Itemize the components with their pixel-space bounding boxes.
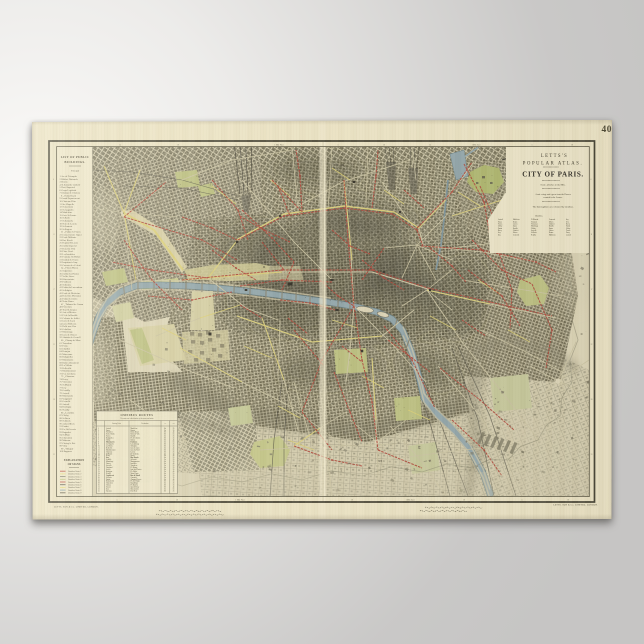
svg-text:1 Mile West: 1 Mile West: [235, 499, 245, 501]
svg-text:Madeleine: Madeleine: [131, 427, 138, 429]
svg-text:35: 35: [173, 461, 175, 463]
svg-text:6: 6: [591, 179, 592, 181]
svg-text:Louvre: Louvre: [549, 230, 554, 232]
svg-text:22: 22: [591, 344, 593, 346]
svg-text:Bourse: Bourse: [513, 221, 518, 223]
svg-text:Pl. de l'Etoile: Pl. de l'Etoile: [106, 433, 115, 435]
svg-text:Observatoire: Observatoire: [131, 488, 140, 490]
svg-text:Pl. Blanche: Pl. Blanche: [531, 219, 539, 221]
svg-text:55: 55: [173, 457, 175, 459]
svg-text:Concorde: Concorde: [549, 219, 555, 221]
svg-text:Bercy: Bercy: [566, 223, 570, 225]
svg-text:Destination: Destination: [141, 423, 148, 425]
svg-text:55: 55: [173, 480, 175, 482]
svg-text:1: 1: [299, 313, 301, 317]
svg-text:30c: 30c: [164, 478, 167, 480]
svg-text:Jard. des Plantes: Jard. des Plantes: [131, 468, 142, 470]
svg-text:10: 10: [463, 499, 465, 501]
svg-text:25: 25: [173, 451, 175, 453]
svg-text:33: 33: [591, 454, 593, 456]
svg-text:5: 5: [532, 144, 533, 146]
svg-text:Neuilly: Neuilly: [106, 472, 111, 474]
svg-text:15: 15: [160, 401, 164, 405]
svg-text:35: 35: [173, 476, 175, 478]
svg-text:Montparnasse: Montparnasse: [131, 461, 140, 463]
svg-text:25c: 25c: [164, 453, 167, 455]
svg-text:10: 10: [351, 499, 353, 501]
svg-text:Charenton: Charenton: [106, 482, 113, 484]
svg-text:45: 45: [173, 439, 175, 441]
svg-text:5: 5: [338, 144, 339, 146]
svg-text:10: 10: [176, 499, 178, 501]
svg-text:33: 33: [53, 454, 55, 456]
svg-text:OF SIGNS: OF SIGNS: [68, 463, 81, 466]
svg-text:40: 40: [602, 125, 613, 135]
svg-text:20c: 20c: [164, 463, 167, 465]
svg-text:Suresnes: Suresnes: [106, 490, 112, 492]
svg-text:17: 17: [210, 239, 214, 243]
svg-text:Rue de Rivoli: Rue de Rivoli: [131, 474, 141, 476]
svg-text:Pantin: Pantin: [498, 227, 502, 229]
svg-text:55: 55: [173, 488, 175, 490]
svg-text:20: 20: [482, 235, 486, 239]
svg-text:15: 15: [429, 144, 431, 146]
svg-text:35: 35: [173, 445, 175, 447]
svg-text:counted in the Louvre.: counted in the Louvre.: [543, 197, 563, 199]
svg-text:25c: 25c: [164, 429, 167, 431]
svg-text:Grenelle: Grenelle: [531, 230, 537, 232]
svg-text:Montmartre: Montmartre: [106, 441, 115, 443]
svg-text:25: 25: [173, 482, 175, 484]
svg-text:25c: 25c: [164, 441, 167, 443]
svg-text:10: 10: [383, 144, 385, 146]
svg-text:Sceaux: Sceaux: [106, 486, 111, 488]
svg-text:30c: 30c: [164, 467, 167, 469]
svg-text:28: 28: [591, 399, 593, 401]
svg-text:Pantin: Pantin: [566, 225, 570, 227]
svg-text:Odeon: Odeon: [513, 232, 517, 234]
svg-text:LETTS, SON & Co. LIMITED, LOND: LETTS, SON & Co. LIMITED, LONDON.: [553, 504, 598, 506]
svg-text:Neuilly: Neuilly: [531, 234, 536, 236]
svg-text:Opera: Opera: [131, 455, 135, 457]
svg-text:Pantheon: Pantheon: [131, 441, 138, 443]
svg-text:25c: 25c: [164, 447, 167, 449]
svg-text:LETTS, SON & Co. LIMITED, LOND: LETTS, SON & Co. LIMITED, LONDON.: [54, 506, 99, 508]
svg-text:BUILDINGS.: BUILDINGS.: [64, 160, 85, 164]
svg-text:Invalides: Invalides: [131, 463, 137, 465]
svg-text:Omnibus Route 7: Omnibus Route 7: [68, 487, 81, 489]
svg-text:25c: 25c: [164, 488, 167, 490]
svg-text:Principal: Principal: [70, 170, 80, 172]
svg-text:Omnibus Route 9: Omnibus Route 9: [68, 492, 81, 494]
svg-text:La Chapelle: La Chapelle: [106, 443, 114, 445]
svg-text:13: 13: [378, 459, 382, 463]
svg-text:45: 45: [173, 463, 175, 465]
svg-text:Passy: Passy: [566, 232, 570, 234]
svg-text:25: 25: [173, 467, 175, 469]
svg-text:Ternes: Ternes: [106, 435, 111, 437]
svg-text:Passy: Passy: [498, 221, 502, 223]
svg-text:Concorde: Concorde: [131, 476, 138, 478]
svg-text:5: 5: [236, 144, 237, 146]
svg-text:22: 22: [53, 344, 55, 346]
svg-text:Bercy: Bercy: [498, 230, 502, 232]
svg-text:Pl. d'Italie: Pl. d'Italie: [131, 470, 138, 472]
svg-text:11: 11: [591, 234, 593, 236]
svg-text:10: 10: [567, 499, 569, 501]
svg-text:35: 35: [173, 484, 175, 486]
svg-text:20c: 20c: [164, 427, 167, 429]
svg-text:St.Denis: St.Denis: [106, 476, 112, 478]
svg-text:4: 4: [383, 295, 385, 299]
svg-text:Choisy: Choisy: [106, 484, 111, 486]
svg-text:Chatelet: Chatelet: [513, 230, 519, 232]
svg-text:Bourse: Bourse: [549, 232, 554, 234]
svg-text:Omnibus Route 6: Omnibus Route 6: [68, 484, 81, 486]
svg-text:LIST OF PUBLIC: LIST OF PUBLIC: [61, 155, 90, 159]
svg-text:Ivry: Ivry: [566, 221, 569, 223]
svg-text:6: 6: [53, 179, 54, 181]
svg-text:45: 45: [173, 431, 175, 433]
svg-text:1 Mile East: 1 Mile East: [472, 144, 481, 146]
svg-text:20c: 20c: [164, 457, 167, 459]
svg-text:5: 5: [117, 499, 118, 501]
svg-text:Bourse: Bourse: [131, 429, 136, 431]
svg-text:17: 17: [53, 289, 55, 291]
svg-text:25: 25: [173, 443, 175, 445]
svg-text:100 Bagneux: 100 Bagneux: [60, 450, 73, 453]
svg-text:Belleville: Belleville: [106, 447, 113, 449]
svg-text:Trocadero: Trocadero: [106, 431, 113, 433]
svg-text:30c: 30c: [164, 449, 167, 451]
svg-text:Sevres: Sevres: [106, 468, 111, 470]
svg-text:25c: 25c: [164, 482, 167, 484]
svg-text:35: 35: [173, 468, 175, 470]
svg-text:25c: 25c: [164, 435, 167, 437]
svg-text:Bercy: Bercy: [106, 455, 110, 457]
svg-text:35: 35: [173, 429, 175, 431]
svg-text:Opera: Opera: [549, 227, 553, 229]
svg-text:Villette: Villette: [531, 227, 536, 229]
svg-text:Ivry: Ivry: [498, 232, 501, 234]
svg-text:30c: 30c: [164, 437, 167, 439]
svg-text:11: 11: [53, 234, 55, 236]
svg-text:25: 25: [173, 435, 175, 437]
svg-text:Issy: Issy: [106, 488, 109, 490]
svg-text:35: 35: [173, 437, 175, 439]
svg-text:St.Denis: St.Denis: [531, 232, 537, 234]
svg-text:Omnibus Route 4: Omnibus Route 4: [68, 479, 81, 481]
svg-text:20c: 20c: [164, 433, 167, 435]
svg-text:CITY OF PARIS.: CITY OF PARIS.: [522, 170, 584, 178]
svg-text:18: 18: [340, 163, 344, 167]
svg-text:55: 55: [173, 472, 175, 474]
svg-text:Charonne: Charonne: [106, 451, 113, 453]
svg-text:55: 55: [173, 441, 175, 443]
svg-text:20c: 20c: [164, 486, 167, 488]
svg-text:Concorde: Concorde: [513, 234, 519, 236]
svg-text:St.Sulpice: St.Sulpice: [131, 445, 138, 447]
svg-text:Odeon: Odeon: [131, 439, 136, 441]
svg-text:Louvre: Louvre: [131, 451, 136, 453]
svg-text:Pl. du Chatelet: Pl. du Chatelet: [131, 437, 141, 439]
svg-text:Passy: Passy: [106, 429, 110, 431]
svg-text:Pl. Blanche: Pl. Blanche: [131, 484, 139, 486]
svg-text:Quai d'Orsay: Quai d'Orsay: [131, 486, 140, 488]
svg-text:Palais Royal: Palais Royal: [131, 431, 140, 433]
svg-text:20c: 20c: [164, 439, 167, 441]
svg-text:15: 15: [119, 144, 121, 146]
svg-text:Omnibus Route 2: Omnibus Route 2: [68, 473, 81, 475]
svg-text:Clichy: Clichy: [498, 225, 502, 227]
svg-text:25c: 25c: [164, 476, 167, 478]
svg-text:16: 16: [134, 258, 138, 262]
svg-text:30c: 30c: [164, 455, 167, 457]
svg-text:20c: 20c: [164, 480, 167, 482]
svg-text:POPULAR ATLAS.: POPULAR ATLAS.: [523, 161, 583, 166]
svg-text:Ivry: Ivry: [106, 457, 109, 459]
svg-text:1 Mile West: 1 Mile West: [274, 144, 284, 146]
svg-text:45: 45: [173, 455, 175, 457]
svg-text:Gentilly: Gentilly: [106, 459, 112, 461]
svg-text:Ternes: Ternes: [566, 230, 571, 232]
svg-text:10: 10: [571, 144, 573, 146]
svg-text:Courbevoie: Courbevoie: [106, 474, 114, 476]
svg-text:Clichy: Clichy: [566, 227, 570, 229]
svg-text:Menilmontant: Menilmontant: [106, 449, 116, 451]
svg-text:Time: Time: [172, 423, 175, 425]
svg-text:20c: 20c: [164, 474, 167, 476]
svg-text:Opera: Opera: [513, 225, 517, 227]
svg-text:Omnibus Route 3: Omnibus Route 3: [68, 476, 81, 478]
svg-text:55: 55: [173, 465, 175, 467]
svg-text:20c: 20c: [164, 445, 167, 447]
svg-text:Issy: Issy: [566, 219, 569, 221]
svg-text:45: 45: [173, 470, 175, 472]
svg-text:5: 5: [294, 499, 295, 501]
svg-text:Clichy: Clichy: [106, 439, 111, 441]
svg-text:20c: 20c: [164, 468, 167, 470]
svg-text:St.Lazare: St.Lazare: [531, 221, 537, 223]
svg-text:Odeon: Odeon: [549, 221, 553, 223]
svg-text:Bastille: Bastille: [513, 227, 518, 229]
svg-text:Vincennes: Vincennes: [531, 223, 538, 225]
svg-text:8: 8: [263, 265, 265, 269]
svg-text:Bastille: Bastille: [131, 435, 136, 437]
svg-text:Notre Dame: Notre Dame: [131, 472, 139, 474]
svg-text:Romainville: Romainville: [106, 480, 114, 482]
svg-text:Pantin: Pantin: [106, 478, 110, 480]
svg-text:30c: 30c: [164, 461, 167, 463]
svg-text:OMNIBUS ROUTES: OMNIBUS ROUTES: [121, 414, 154, 417]
svg-text:Rue Royale: Rue Royale: [131, 457, 139, 459]
svg-text:Madeleine: Madeleine: [549, 234, 556, 236]
svg-text:5: 5: [522, 499, 523, 501]
svg-text:30c: 30c: [164, 484, 167, 486]
svg-text:Scale: 4 Inches to the Mile.: Scale: 4 Inches to the Mile.: [540, 184, 566, 186]
svg-text:Gare du Nord: Gare du Nord: [131, 449, 140, 451]
svg-text:10: 10: [177, 144, 179, 146]
svg-text:Ternes: Ternes: [498, 223, 503, 225]
svg-text:Champs Elysees: Champs Elysees: [131, 478, 142, 480]
svg-text:30c: 30c: [164, 472, 167, 474]
svg-text:Trocadero: Trocadero: [131, 465, 138, 467]
svg-text:14: 14: [280, 435, 284, 439]
svg-text:28: 28: [53, 399, 55, 401]
svg-text:Issy: Issy: [498, 234, 501, 236]
svg-text:The thoroughfares are coloured: The thoroughfares are coloured by omnibu…: [533, 205, 574, 208]
svg-text:Bastille: Bastille: [549, 225, 554, 227]
svg-text:Fare: Fare: [164, 423, 167, 425]
svg-text:Gare de Lyon: Gare de Lyon: [131, 447, 140, 449]
svg-text:35: 35: [173, 453, 175, 455]
svg-text:25: 25: [173, 459, 175, 461]
svg-text:30c: 30c: [164, 431, 167, 433]
svg-text:Hotel de Ville: Hotel de Ville: [131, 433, 140, 435]
svg-text:Louvre: Louvre: [513, 223, 518, 225]
svg-text:25c: 25c: [164, 465, 167, 467]
svg-text:55: 55: [173, 433, 175, 435]
svg-text:St.Mande: St.Mande: [106, 453, 113, 455]
svg-text:Omnibus.: Omnibus.: [535, 215, 543, 217]
svg-text:St.Lazare: St.Lazare: [131, 459, 138, 461]
svg-text:Omnibus Route 5: Omnibus Route 5: [68, 481, 81, 483]
svg-text:17: 17: [591, 289, 593, 291]
svg-text:45: 45: [173, 486, 175, 488]
svg-text:25: 25: [173, 474, 175, 476]
svg-text:Omnibus Route 8: Omnibus Route 8: [68, 489, 81, 491]
svg-text:25: 25: [173, 490, 175, 492]
svg-text:25c: 25c: [164, 470, 167, 472]
svg-text:20c: 20c: [164, 451, 167, 453]
svg-text:Chatelet: Chatelet: [549, 223, 555, 225]
svg-text:25c: 25c: [164, 459, 167, 461]
svg-text:1 Mile East: 1 Mile East: [406, 499, 415, 501]
svg-text:Vanves: Vanves: [106, 463, 111, 465]
svg-text:Pl. Vendome: Pl. Vendome: [131, 453, 140, 455]
svg-text:3: 3: [429, 259, 431, 263]
svg-text:EXPLANATION: EXPLANATION: [64, 459, 84, 462]
svg-text:6: 6: [333, 369, 335, 373]
svg-text:30c: 30c: [164, 490, 167, 492]
svg-text:55: 55: [173, 449, 175, 451]
svg-text:25: 25: [173, 427, 175, 429]
svg-text:Grenelle: Grenelle: [106, 465, 112, 467]
svg-text:30c: 30c: [164, 443, 167, 445]
svg-text:La Villette: La Villette: [106, 445, 113, 447]
svg-text:45: 45: [173, 478, 175, 480]
svg-text:A safe refuge and egress from: A safe refuge and egress from the Houses: [535, 193, 571, 196]
svg-text:45: 45: [173, 447, 175, 449]
svg-text:Omnibus Route 1: Omnibus Route 1: [68, 471, 81, 473]
svg-text:LETTS'S: LETTS'S: [541, 154, 568, 159]
svg-text:Madeleine: Madeleine: [513, 219, 520, 221]
